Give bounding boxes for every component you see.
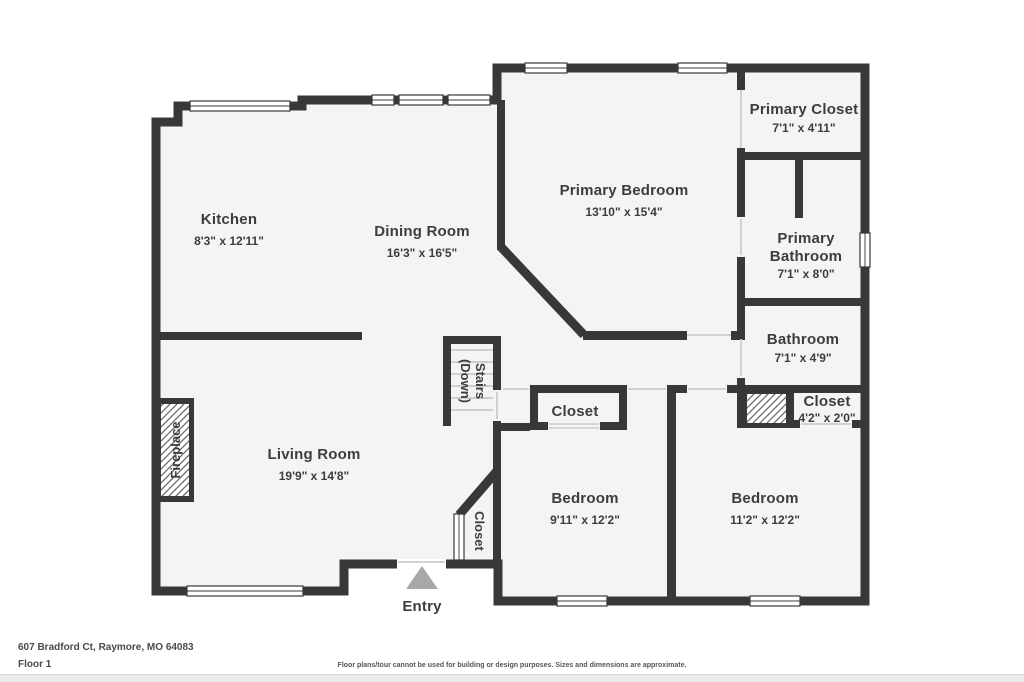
room-label-living-room: Living Room [267,446,360,463]
room-label-primary-bathroom-line2: Bathroom [770,248,842,265]
room-label-hall-closet: Closet [803,393,850,410]
room-label-primary-bathroom-line1: Primary [777,230,835,247]
entry-arrow-icon [406,566,438,589]
room-dims-primary-bedroom: 13'10" x 15'4" [585,205,662,219]
room-label-primary-bedroom: Primary Bedroom [560,182,689,199]
disclaimer-text: Floor plans/tour cannot be used for buil… [0,662,1024,669]
room-label-entry-closet: Closet [472,511,487,551]
floor-plan-canvas: Fireplace Stairs (Down) [0,0,1024,682]
room-dims-hall-closet: 4'2" x 2'0" [798,411,855,425]
room-label-bedroom-closet: Closet [551,403,598,420]
floor-plan-page: Fireplace Stairs (Down) [0,0,1024,682]
bottom-bar [0,674,1024,682]
room-label-kitchen: Kitchen [201,211,257,228]
room-dims-bedroom-small: 9'11" x 12'2" [550,513,620,527]
room-dims-dining-room: 16'3" x 16'5" [387,246,457,260]
room-dims-kitchen: 8'3" x 12'11" [194,234,264,248]
room-dims-primary-closet: 7'1" x 4'11" [772,121,835,135]
room-dims-bedroom-large: 11'2" x 12'2" [730,513,800,527]
room-dims-living-room: 19'9" x 14'8" [279,469,349,483]
room-label-primary-closet: Primary Closet [750,101,859,118]
room-dims-primary-bathroom: 7'1" x 8'0" [777,267,834,281]
fireplace: Fireplace [156,398,194,502]
room-label-dining-room: Dining Room [374,223,470,240]
address-line: 607 Bradford Ct, Raymore, MO 64083 [18,642,194,653]
entry-label: Entry [402,598,442,615]
stairs-label-line2: (Down) [458,359,473,403]
room-label-bathroom: Bathroom [767,331,839,348]
room-label-bedroom-small: Bedroom [551,490,618,507]
stairs-label-line1: Stairs [473,363,488,399]
utility-hatch-box [743,390,790,427]
room-dims-bathroom: 7'1" x 4'9" [774,351,831,365]
fireplace-label: Fireplace [168,421,183,478]
room-label-bedroom-large: Bedroom [731,490,798,507]
